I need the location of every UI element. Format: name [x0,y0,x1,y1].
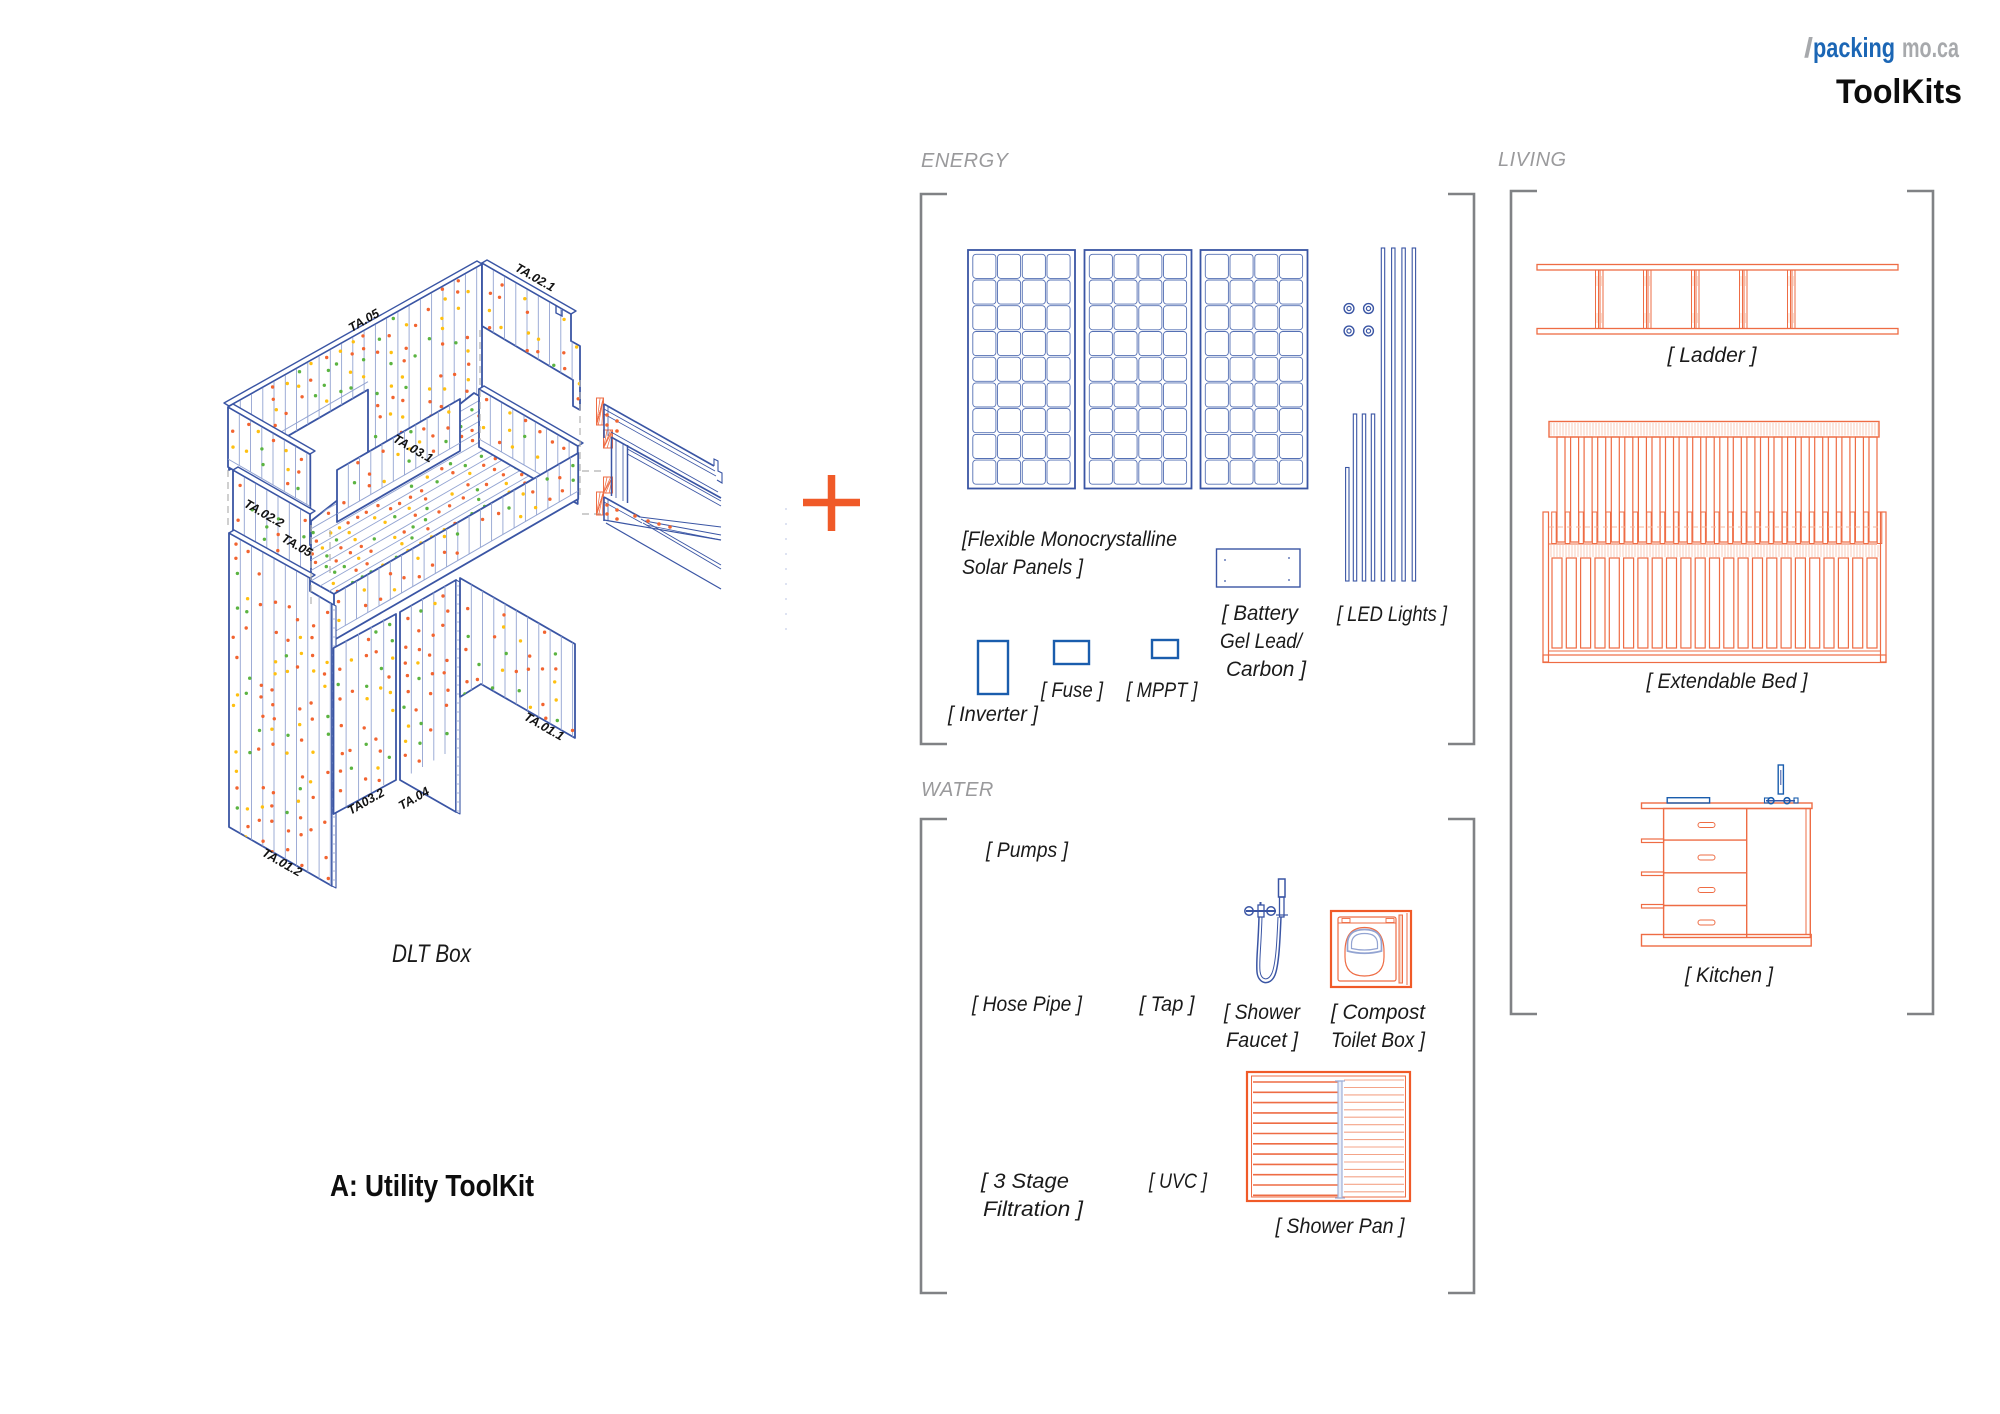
svg-text:[ Battery: [ Battery [1221,601,1299,625]
svg-text:[ Shower: [ Shower [1223,1000,1301,1024]
svg-text:Faucet ]: Faucet ] [1226,1028,1299,1052]
svg-text:[ Extendable Bed ]: [ Extendable Bed ] [1646,669,1809,693]
svg-text:/: / [1804,32,1813,63]
svg-text:[ Ladder ]: [ Ladder ] [1667,343,1758,367]
svg-text:[ 3 Stage: [ 3 Stage [980,1169,1069,1193]
svg-text:[ LED Lights ]: [ LED Lights ] [1336,602,1448,626]
svg-text:[ Kitchen ]: [ Kitchen ] [1684,963,1774,987]
svg-text:[ Compost: [ Compost [1330,1000,1426,1024]
svg-text:Toilet Box ]: Toilet Box ] [1331,1028,1426,1052]
svg-text:Filtration ]: Filtration ] [983,1197,1084,1221]
svg-text:[ Inverter ]: [ Inverter ] [947,702,1039,726]
svg-text:Solar Panels ]: Solar Panels ] [962,555,1084,579]
svg-text:[ Tap ]: [ Tap ] [1139,992,1196,1016]
svg-text:packing: packing [1813,32,1895,63]
svg-text:[ MPPT ]: [ MPPT ] [1126,678,1199,702]
svg-text:mo.ca: mo.ca [1902,32,1959,63]
svg-text:A: Utility ToolKit: A: Utility ToolKit [330,1168,534,1203]
svg-text:[ Fuse ]: [ Fuse ] [1040,678,1104,702]
svg-text:LIVING: LIVING [1498,149,1567,171]
svg-text:[Flexible Monocrystalline: [Flexible Monocrystalline [961,527,1177,551]
svg-text:[ Shower Pan ]: [ Shower Pan ] [1275,1214,1406,1238]
svg-text:[ Pumps ]: [ Pumps ] [985,838,1069,862]
svg-text:[ UVC ]: [ UVC ] [1148,1169,1208,1193]
svg-text:ENERGY: ENERGY [921,150,1010,172]
svg-text:ToolKits: ToolKits [1836,73,1962,111]
svg-text:WATER: WATER [921,779,994,801]
svg-text:[ Hose Pipe ]: [ Hose Pipe ] [971,992,1083,1016]
svg-text:DLT Box: DLT Box [392,940,472,968]
svg-text:Gel Lead/: Gel Lead/ [1220,629,1304,653]
svg-text:Carbon ]: Carbon ] [1226,657,1307,681]
